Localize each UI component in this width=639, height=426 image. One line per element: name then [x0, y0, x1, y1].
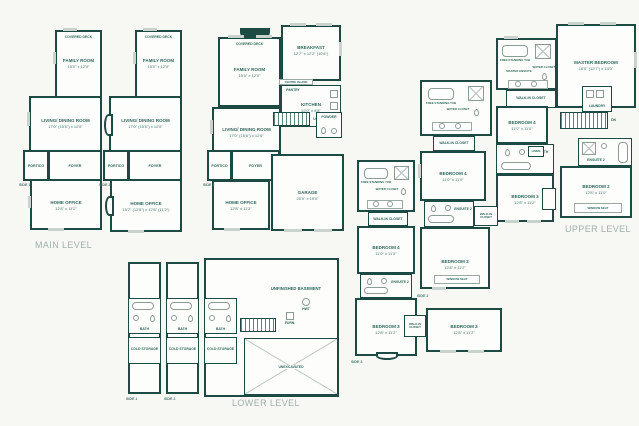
main3-home-office: HOME OFFICE 12'8" x 11'2"	[212, 180, 270, 230]
main2-bay-window	[104, 114, 113, 136]
main3-centre-island-label: CENTRE ISLAND	[280, 81, 312, 84]
alt2-bedroom3: BEDROOM 3 12'8" x 11'2" WINDOW SEAT	[420, 227, 490, 289]
window	[634, 52, 637, 68]
window	[314, 229, 332, 232]
room-dim: 15'0" x 12'0"	[220, 73, 279, 78]
lower2-side-label: SIDE 2	[164, 397, 175, 401]
room-dim: 17'0" (15'6") x 12'6"	[214, 133, 279, 138]
bathtub-icon	[364, 287, 388, 294]
linen-label: LINEN	[529, 150, 543, 153]
upper-bedroom3-closet	[542, 188, 556, 210]
master-ensuite-label: MASTER ENSUITE	[504, 70, 534, 73]
room-name: HOME OFFICE	[130, 201, 161, 206]
alt2-ensuite2: ENSUITE 2	[424, 201, 474, 227]
room-name: FAMILY ROOM	[143, 58, 174, 63]
window	[53, 52, 56, 64]
alt2-bedroom4: BEDROOM 4 11'0" x 11'0"	[420, 151, 486, 201]
laundry-label: LAUNDRY	[583, 104, 611, 108]
room-dim: 12'8" x 11'2"	[428, 330, 500, 335]
lower3-bath-label: BATH	[205, 327, 236, 331]
room-name: BEDROOM 2	[582, 184, 609, 189]
main1-side-label: SIDE 1	[19, 183, 30, 187]
main1-foyer: FOYER	[48, 150, 102, 181]
window	[133, 52, 136, 64]
alt3-ensuite: FREE STANDING TUB WATER CLOSET	[357, 160, 415, 212]
room-name: HOME OFFICE	[50, 200, 81, 205]
room-name: BREAKFAST	[297, 45, 325, 50]
main3-living-dining-label: LIVING/ DINING ROOM 17'0" (15'6") x 12'6…	[214, 127, 279, 138]
water-closet-label: WATER CLOSET	[375, 188, 399, 191]
main1-home-office: HOME OFFICE 12'8" x 11'2"	[30, 179, 102, 230]
upper-bedroom2: BEDROOM 2 12'8" x 11'0" WINDOW SEAT	[560, 166, 632, 218]
main1-living-dining-label: LIVING/ DINING ROOM 17'0" (15'6") x 12'6…	[31, 118, 100, 129]
main1-portico-label: PORTICO	[25, 164, 47, 168]
window	[228, 35, 244, 38]
room-dim: 12'7" x 12'2" (10'8")	[283, 51, 339, 56]
room-name: LIVING/ DINING ROOM	[222, 127, 271, 132]
ensuite2-label: ENSUITE 2	[453, 207, 473, 211]
lower1-bath-label: BATH	[129, 327, 160, 331]
alt3-side-label: SIDE 3	[351, 360, 362, 364]
room-name: BEDROOM 3	[441, 259, 468, 264]
lower3-unexcavated: UNEXCAVATED	[244, 338, 338, 395]
main1-foyer-label: FOYER	[50, 164, 100, 169]
frag-bedroom3-label: BEDROOM 3 12'8" x 11'2"	[428, 324, 500, 335]
toilet-icon	[367, 278, 372, 285]
room-dim: 17'0" (15'6") x 12'6"	[111, 124, 180, 129]
main3-stairs: UP	[273, 112, 310, 126]
main2-portico-label: PORTICO	[105, 164, 127, 168]
alt2-bedroom3-label: BEDROOM 3 12'8" x 11'2"	[422, 259, 488, 270]
toilet-icon	[505, 149, 510, 156]
room-name: BEDROOM 4	[439, 171, 466, 176]
room-dim: 12'8" x 11'2"	[422, 265, 488, 270]
lower1-side-label: SIDE 1	[126, 397, 137, 401]
furnace-label: FURN.	[280, 321, 300, 325]
main3-breakfast: BREAKFAST 12'7" x 12'2" (10'8")	[281, 25, 341, 81]
alt3-bedroom4: BEDROOM 4 11'0" x 11'0"	[357, 226, 415, 274]
shower-icon	[582, 142, 596, 155]
room-name: MASTER BEDROOM	[574, 60, 618, 65]
lower2-bath-label: BATH	[167, 327, 198, 331]
main3-family-room-label: FAMILY ROOM 15'0" x 12'0"	[220, 67, 279, 78]
room-name: LIVING/ DINING ROOM	[121, 118, 170, 123]
main3-home-office-label: HOME OFFICE 12'8" x 11'2"	[214, 200, 268, 211]
dryer-icon	[596, 90, 604, 98]
upper-laundry: LAUNDRY	[582, 86, 612, 112]
main3-family-room: COVERED DECK FAMILY ROOM 15'0" x 12'0"	[218, 37, 281, 107]
main2-home-office: HOME OFFICE 15'7" (12'8") x 12'6" (11'2"…	[110, 179, 182, 232]
alt3-ensuite2: ENSUITE 2	[360, 274, 412, 298]
vanity-counter	[432, 122, 472, 131]
frag-bedroom3: BEDROOM 3 12'8" x 11'2"	[426, 308, 502, 352]
stove-icon	[330, 102, 338, 110]
toilet-icon	[226, 315, 231, 322]
window-seat: WINDOW SEAT	[434, 275, 480, 284]
furnace-icon	[286, 312, 294, 320]
room-dim: 11'0" x 11'0"	[498, 126, 546, 131]
alt2-bedroom4-label: BEDROOM 4 11'0" x 11'0"	[422, 171, 484, 182]
sink-icon	[171, 315, 177, 321]
main3-garage-label: GARAGE 20'0" x 19'0"	[273, 190, 342, 201]
free-standing-tub-label: FREE STANDING TUB	[360, 181, 392, 184]
window	[290, 23, 306, 26]
toilet-icon	[188, 315, 193, 322]
lower2-cold-storage-label: COLD STORAGE	[167, 347, 198, 351]
window	[316, 23, 332, 26]
walk-in-closet-label: WALK-IN CLOSET	[434, 141, 474, 145]
ensuite2-label: ENSUITE 2	[581, 158, 611, 162]
walk-in-closet-label: WALK-IN CLOSET	[475, 213, 497, 220]
room-name: BEDROOM 4	[508, 120, 535, 125]
room-dim: 11'0" x 11'0"	[422, 177, 484, 182]
window	[527, 220, 541, 223]
sink-icon	[387, 201, 393, 207]
main3-powder-label: POWDER	[317, 115, 341, 119]
main1-home-office-label: HOME OFFICE 12'8" x 11'2"	[32, 200, 100, 211]
freestanding-tub-icon	[502, 45, 528, 57]
room-name: BEDROOM 3	[511, 194, 538, 199]
room-name: FAMILY ROOM	[63, 58, 94, 63]
walk-in-closet-label: WALK-IN CLOSET	[369, 217, 407, 221]
lower3-bath: BATH	[204, 298, 237, 334]
upper-bedroom4: BEDROOM 4 11'0" x 11'0"	[496, 106, 548, 144]
sink-icon	[133, 315, 139, 321]
main2-home-office-label: HOME OFFICE 15'7" (12'8") x 12'6" (11'2"…	[112, 201, 180, 212]
main2-side-label: SIDE 2	[99, 183, 110, 187]
upper-linen: LINEN	[528, 146, 544, 157]
window	[224, 228, 240, 231]
main2-family-room-label: FAMILY ROOM 15'0" x 12'0"	[137, 58, 180, 69]
upper-stairs: DN	[560, 112, 608, 129]
washer-icon	[586, 90, 594, 98]
main1-family-room-label: FAMILY ROOM 15'0" x 12'0"	[57, 58, 100, 69]
hot-water-tank-icon	[302, 298, 310, 306]
window	[48, 228, 64, 231]
main3-pantry-label: PANTRY	[284, 88, 302, 92]
alt2-side-label: SIDE 2	[417, 294, 428, 298]
main2-foyer-label: FOYER	[130, 164, 180, 169]
main2-foyer: FOYER	[128, 150, 182, 181]
frag-walk-in-closet: WALK-IN CLOSET	[404, 315, 426, 337]
main1-family-room: COVERED DECK FAMILY ROOM 15'0" x 12'0"	[55, 30, 102, 98]
room-name: LIVING/ DINING ROOM	[41, 118, 90, 123]
room-dim: 11'0" x 11'0"	[359, 251, 413, 256]
lower2-cold-storage: COLD STORAGE	[166, 337, 199, 364]
window	[600, 22, 616, 25]
upper-bedroom2-label: BEDROOM 2 12'8" x 11'0"	[562, 184, 630, 195]
room-dim: 20'0" x 19'0"	[273, 196, 342, 201]
room-dim: 15'7" (12'8") x 12'6" (11'2")	[112, 207, 180, 212]
freestanding-tub-icon	[428, 88, 454, 100]
toilet-icon	[150, 315, 155, 322]
window	[28, 196, 31, 208]
room-dim: 15'0" x 12'0"	[57, 64, 100, 69]
upper-level-title: UPPER LEVEL	[565, 224, 631, 234]
bathtub-icon	[618, 142, 628, 163]
room-dim: 12'8" x 11'2"	[32, 206, 100, 211]
stairs-dn-label: DN	[611, 118, 616, 122]
free-standing-tub-label: FREE STANDING TUB	[424, 102, 458, 105]
main3-breakfast-label: BREAKFAST 12'7" x 12'2" (10'8")	[283, 45, 339, 56]
window	[27, 112, 30, 126]
lower1-cold-storage: COLD STORAGE	[128, 337, 161, 364]
window	[256, 35, 272, 38]
window	[440, 350, 456, 353]
room-name: HOME OFFICE	[225, 200, 256, 205]
upper-ensuite2: ENSUITE 2	[578, 138, 632, 166]
window	[432, 287, 446, 290]
sink-icon	[373, 201, 379, 207]
room-name: BEDROOM 3	[450, 324, 477, 329]
window	[418, 164, 421, 178]
bathtub-icon	[208, 302, 230, 310]
main3-covered-deck-label: COVERED DECK	[220, 42, 279, 46]
sink-icon	[601, 143, 607, 149]
main3-portico: PORTICO	[207, 150, 232, 181]
sink-icon	[445, 205, 451, 211]
sink-icon	[439, 123, 445, 129]
lower3-cold-storage-label: COLD STORAGE	[205, 347, 236, 351]
alt2-walk-in-closet: WALK-IN CLOSET	[433, 136, 475, 151]
upper-master-ensuite: FREE STANDING TUB MASTER ENSUITE WATER C…	[496, 38, 557, 90]
hwt-label: HWT	[296, 307, 316, 311]
main1-portico: PORTICO	[23, 150, 49, 181]
main2-living-dining: LIVING/ DINING ROOM 17'0" (15'6") x 12'6…	[109, 96, 182, 152]
window	[143, 28, 157, 31]
window	[339, 42, 342, 56]
bathtub-icon	[501, 162, 531, 170]
fridge-icon	[330, 90, 338, 98]
alt3-walk-in-closet: WALK-IN CLOSET	[368, 212, 408, 226]
main2-bay-window	[105, 196, 114, 216]
sink-icon	[381, 278, 387, 284]
window	[128, 230, 144, 233]
walk-in-closet-label: WALK-IN CLOSET	[405, 323, 425, 330]
main3-garage: GARAGE 20'0" x 19'0"	[271, 154, 344, 231]
alt2-walk-in-closet-2: WALK-IN CLOSET	[474, 206, 498, 226]
window-seat-label: WINDOW SEAT	[575, 207, 621, 210]
lower3-stairs	[240, 318, 276, 332]
toilet-icon	[401, 188, 406, 195]
room-name: FAMILY ROOM	[234, 67, 265, 72]
main3-powder-room: POWDER	[316, 112, 342, 138]
window	[504, 36, 518, 39]
alt3-bedroom4-label: BEDROOM 4 11'0" x 11'0"	[359, 245, 413, 256]
window-seat-label: WINDOW SEAT	[435, 278, 479, 281]
toilet-icon	[542, 73, 547, 80]
lower1-cold-storage-label: COLD STORAGE	[129, 347, 160, 351]
room-dim: 16'0" (12'7") x 14'0"	[558, 66, 634, 71]
toilet-icon	[474, 109, 479, 116]
lower-level-title: LOWER LEVEL	[232, 398, 300, 408]
room-dim: 12'8" x 11'2"	[214, 206, 268, 211]
room-name: BEDROOM 3	[372, 324, 399, 329]
room-name: KITCHEN	[301, 102, 321, 107]
shower-icon	[468, 86, 484, 101]
lower1-bath: BATH	[128, 298, 161, 334]
unfinished-basement-label: UNFINISHED BASEMENT	[256, 286, 336, 291]
main2-family-room: COVERED DECK FAMILY ROOM 15'0" x 12'0"	[135, 30, 182, 98]
window-seat: WINDOW SEAT	[574, 203, 622, 213]
lower3-cold-storage: COLD STORAGE	[204, 337, 237, 364]
main2-covered-deck-label: COVERED DECK	[137, 35, 180, 39]
bathtub-icon	[428, 215, 454, 223]
vanity-counter	[508, 80, 548, 89]
main2-living-dining-label: LIVING/ DINING ROOM 17'0" (15'6") x 12'6…	[111, 118, 180, 129]
sink-icon	[331, 128, 337, 134]
upper-main-bath: MAIN BATH	[496, 144, 554, 174]
window	[505, 220, 519, 223]
sink-icon	[531, 81, 537, 87]
shower-icon	[394, 166, 409, 180]
room-dim: 17'0" (15'6") x 12'6"	[31, 124, 100, 129]
main3-portico-label: PORTICO	[209, 164, 230, 168]
shower-icon	[535, 44, 551, 59]
toilet-icon	[321, 127, 326, 134]
sink-icon	[519, 149, 525, 155]
room-name: BEDROOM 4	[372, 245, 399, 250]
room-name: GARAGE	[298, 190, 318, 195]
room-dim: 12'8" x 11'0"	[562, 190, 630, 195]
ensuite2-label: ENSUITE 2	[389, 280, 411, 284]
water-closet-label: WATER CLOSET	[446, 108, 470, 111]
sink-icon	[515, 81, 521, 87]
window	[468, 350, 484, 353]
free-standing-tub-label: FREE STANDING TUB	[499, 59, 531, 62]
window	[210, 120, 213, 134]
upper-master-bedroom-label: MASTER BEDROOM 16'0" (12'7") x 14'0"	[558, 60, 634, 71]
room-dim: 15'0" x 12'0"	[137, 64, 180, 69]
window	[63, 28, 77, 31]
bathtub-icon	[132, 302, 154, 310]
lower2-bath: BATH	[166, 298, 199, 334]
sink-icon	[455, 123, 461, 129]
main-level-title: MAIN LEVEL	[35, 240, 92, 250]
main1-covered-deck-label: COVERED DECK	[57, 35, 100, 39]
upper-bedroom4-label: BEDROOM 4 11'0" x 11'0"	[498, 120, 546, 131]
water-closet-label: WATER CLOSET	[532, 66, 556, 69]
main3-side-label: SIDE 3	[203, 183, 214, 187]
window	[568, 22, 584, 25]
sink-icon	[209, 315, 215, 321]
walk-in-closet-label: WALK-IN CLOSET	[507, 96, 555, 100]
alt2-ensuite: FREE STANDING TUB WATER CLOSET	[420, 80, 492, 136]
main1-living-dining: LIVING/ DINING ROOM 17'0" (15'6") x 12'6…	[29, 96, 102, 152]
bathtub-icon	[170, 302, 192, 310]
toilet-icon	[431, 205, 436, 212]
window	[284, 229, 302, 232]
freestanding-tub-icon	[364, 168, 388, 179]
alt3-bay-window	[376, 352, 398, 360]
main2-portico: PORTICO	[103, 150, 129, 181]
unexcavated-label: UNEXCAVATED	[273, 365, 309, 369]
floor-plan-canvas: COVERED DECK FAMILY ROOM 15'0" x 12'0" L…	[0, 0, 639, 426]
